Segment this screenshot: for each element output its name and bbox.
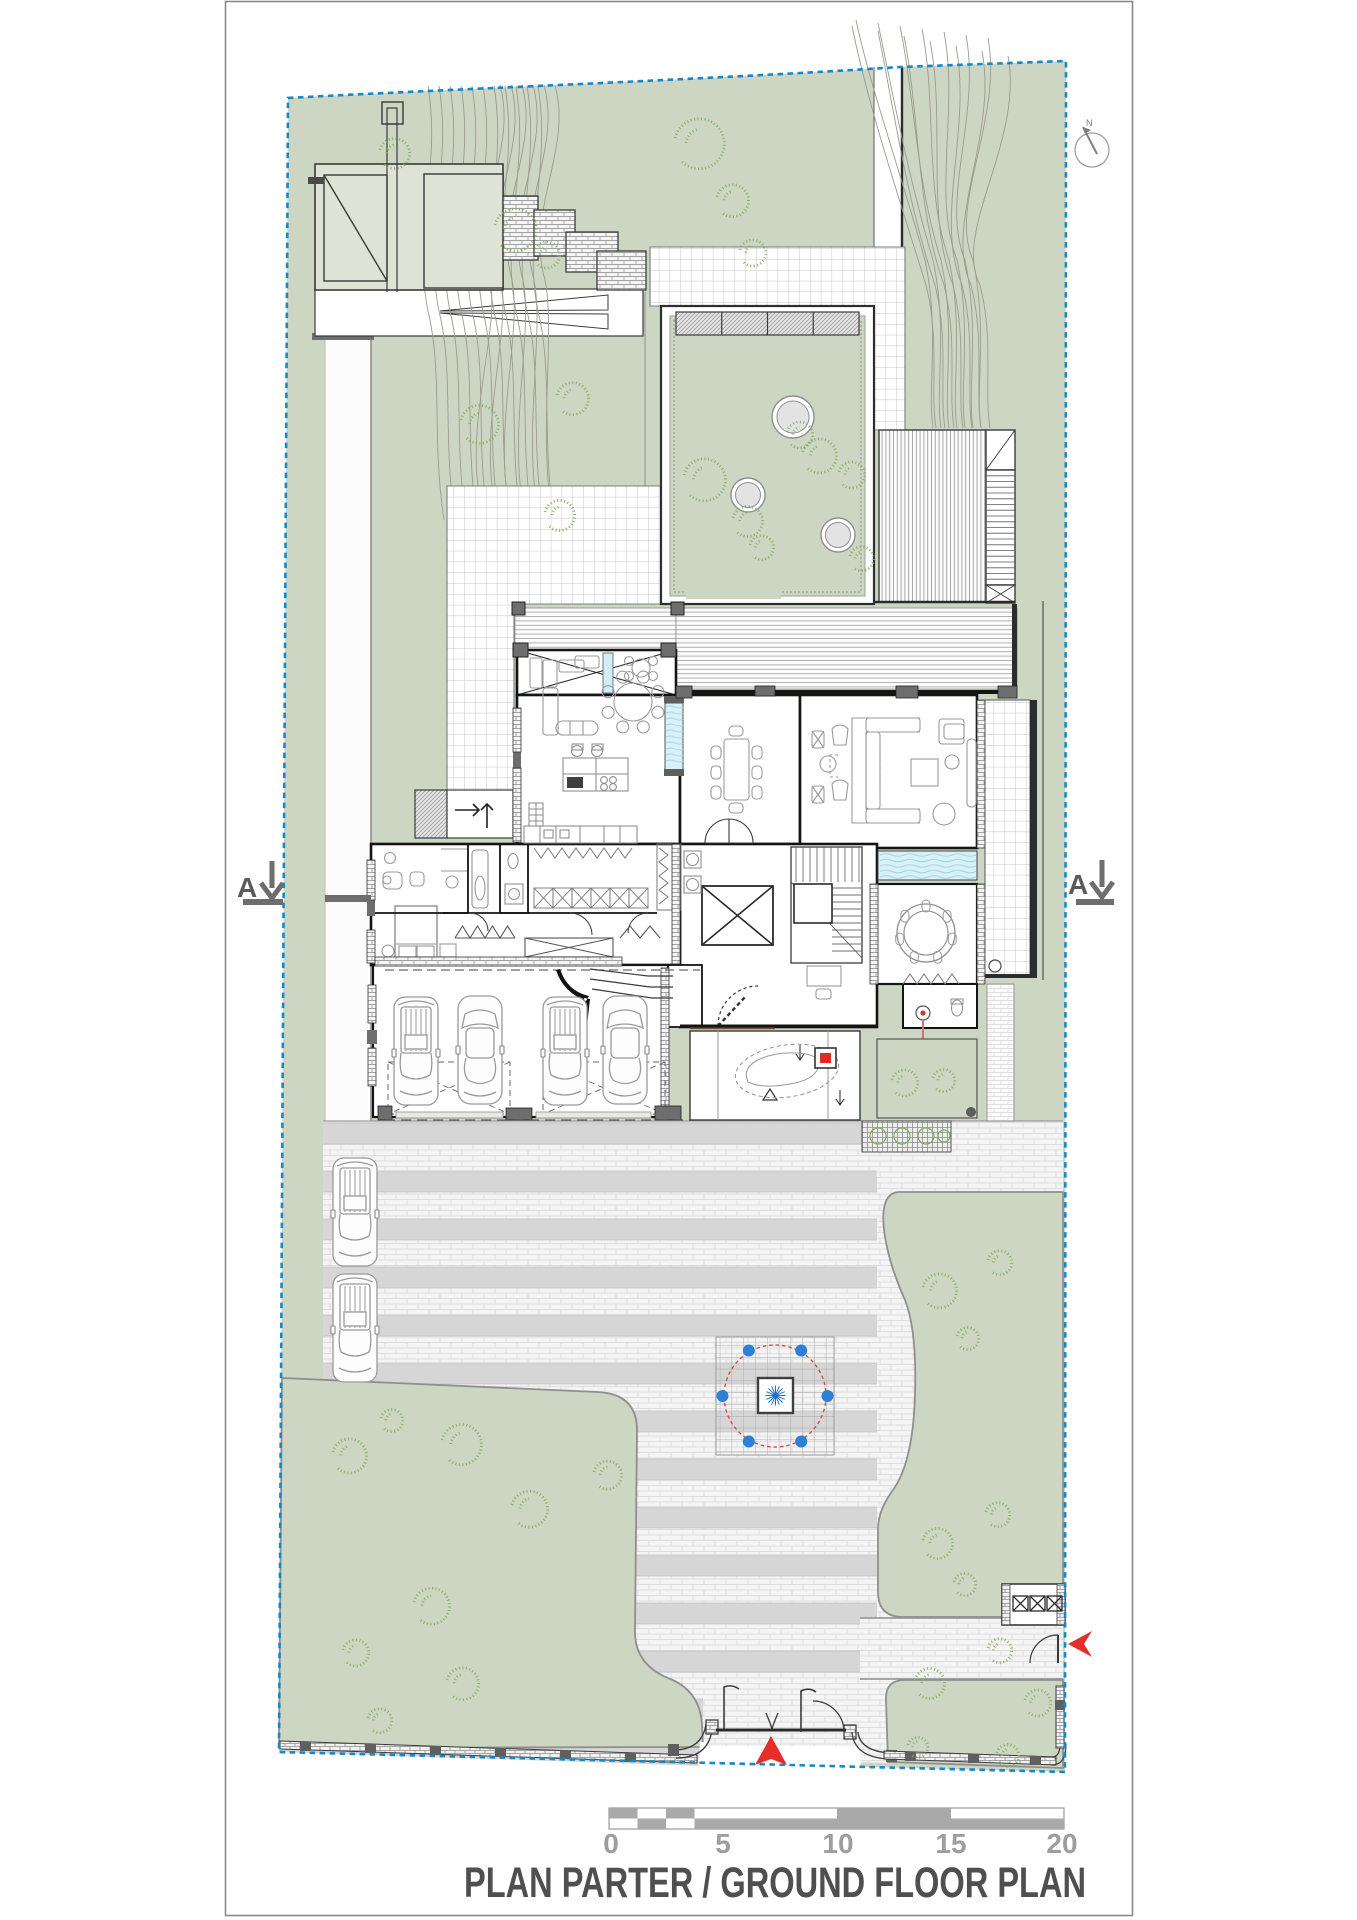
svg-text:0: 0 — [603, 1828, 619, 1859]
svg-text:20: 20 — [1046, 1828, 1077, 1859]
svg-text:A: A — [237, 872, 257, 903]
svg-text:A: A — [1068, 869, 1088, 900]
svg-text:15: 15 — [935, 1828, 966, 1859]
svg-text:10: 10 — [822, 1828, 853, 1859]
svg-text:5: 5 — [715, 1828, 731, 1859]
svg-text:PLAN PARTER / GROUND FLOOR PLA: PLAN PARTER / GROUND FLOOR PLAN — [464, 1859, 1086, 1907]
svg-text:N: N — [1086, 118, 1093, 128]
